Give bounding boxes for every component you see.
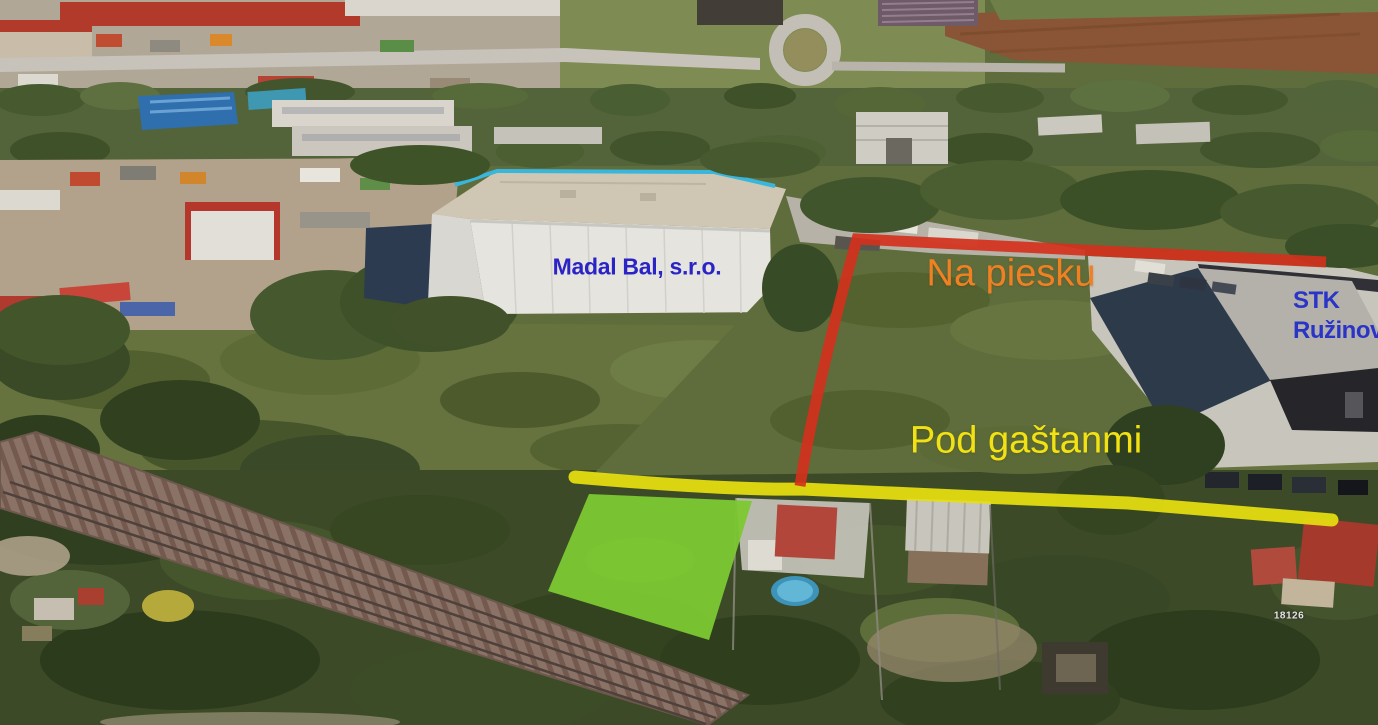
warehouse-dark-wall [364,224,432,308]
aerial-map-view: Madal Bal, s.r.o. Na piesku Pod gaštanmi… [0,0,1378,725]
red-roof-house-right [1298,517,1378,587]
dark-building-top [697,0,783,25]
industrial-zone-mid [0,78,1378,169]
red-roof-sheds [60,2,360,26]
scrapyard-office [185,202,280,260]
barn [905,499,991,554]
white-roof-building [345,0,560,16]
red-roof-house [775,504,838,559]
arched-hall [856,112,948,164]
scene-canvas [0,0,1378,725]
vineyard-rows [878,0,978,26]
